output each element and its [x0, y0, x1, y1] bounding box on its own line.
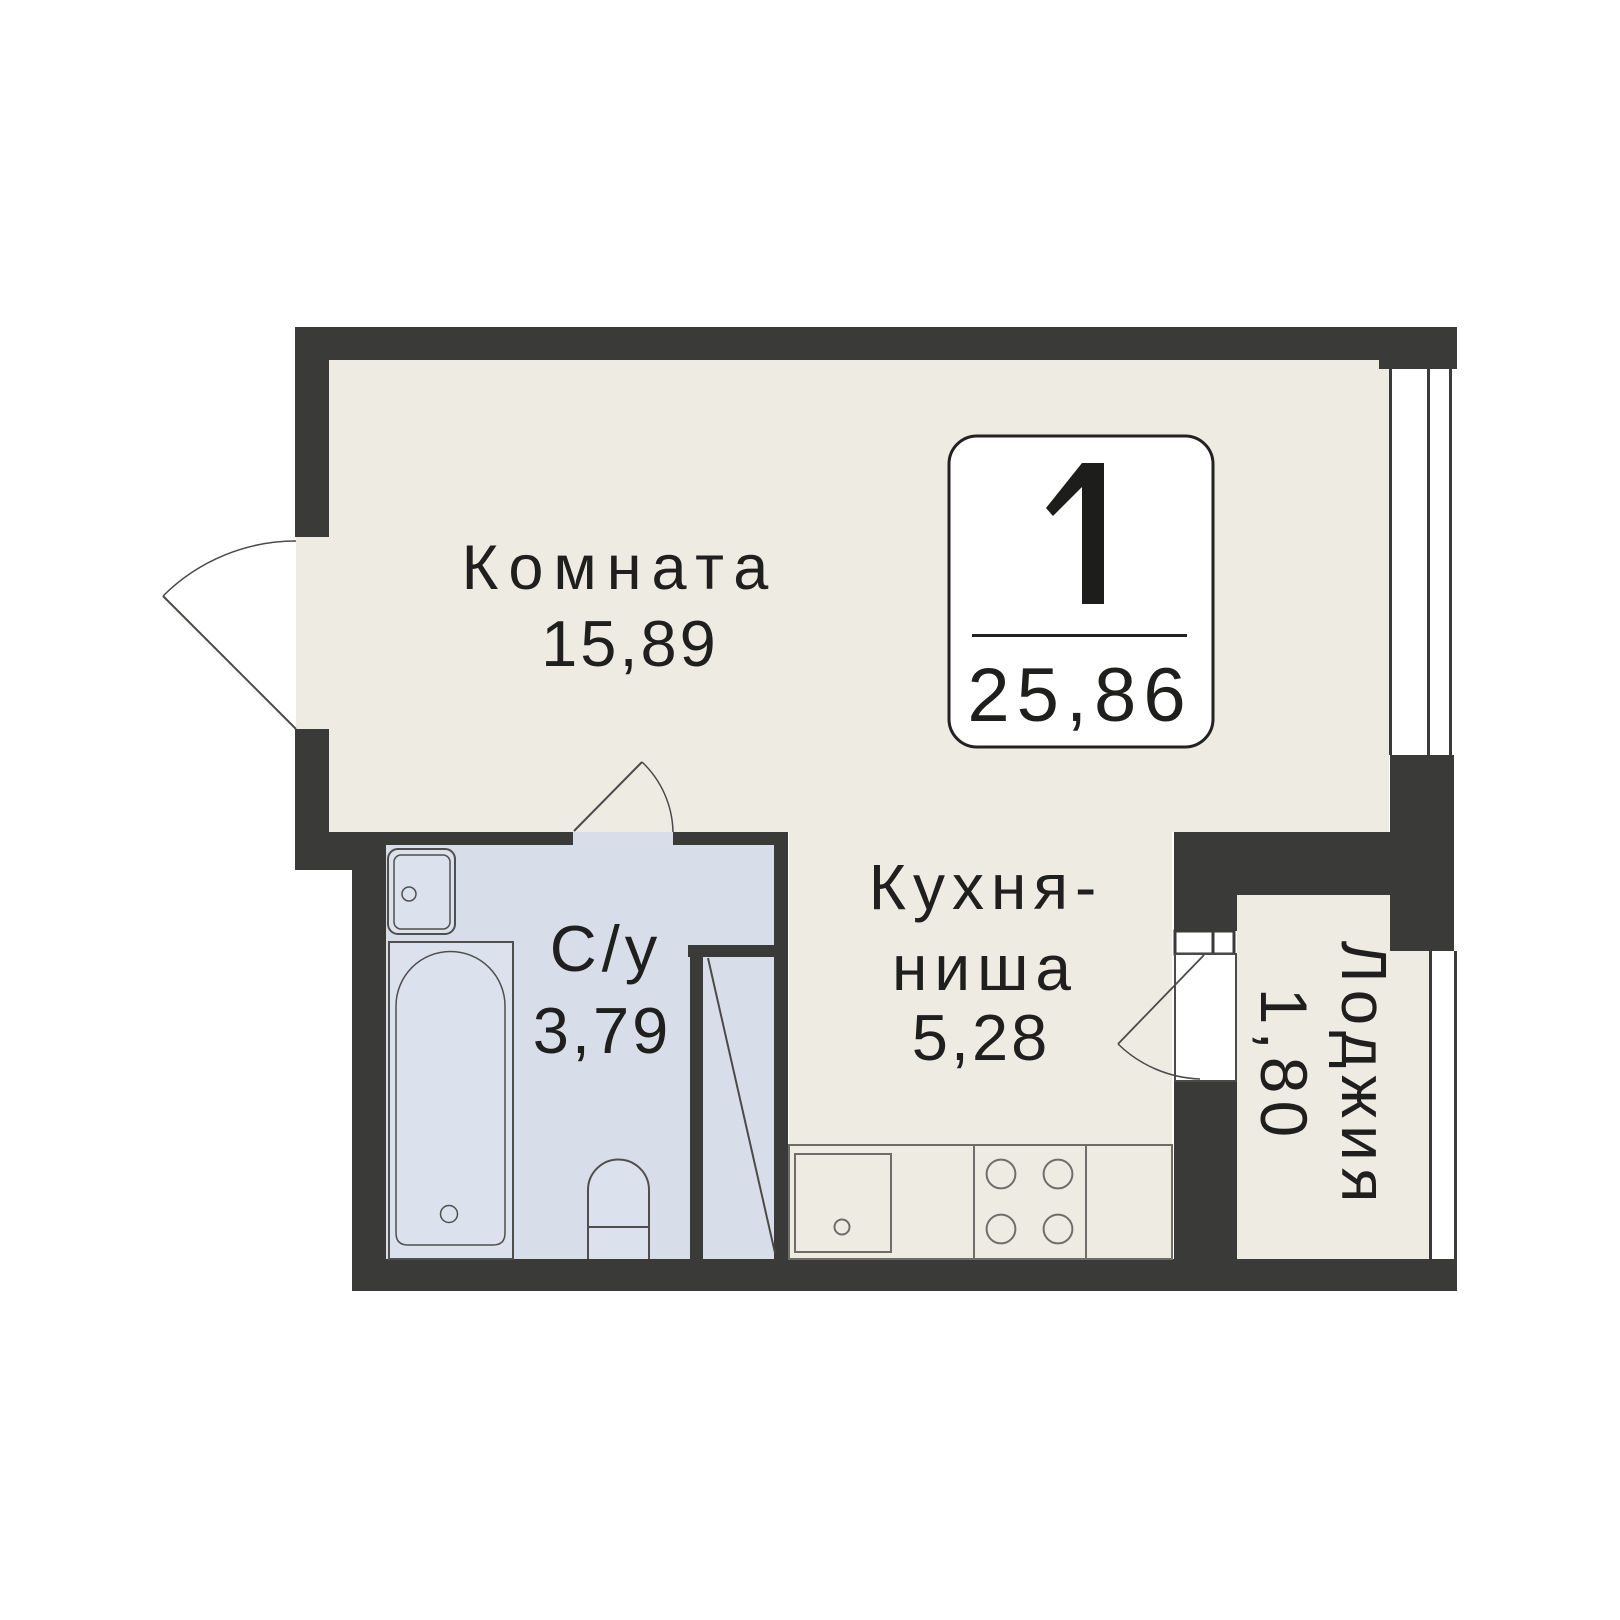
svg-text:15,89: 15,89 — [541, 607, 719, 680]
svg-text:25,86: 25,86 — [967, 653, 1192, 738]
svg-text:5,28: 5,28 — [912, 1001, 1051, 1074]
svg-text:1,80: 1,80 — [1247, 988, 1321, 1144]
svg-text:Лоджия: Лоджия — [1328, 941, 1400, 1210]
svg-text:Кухня-: Кухня- — [869, 851, 1104, 923]
svg-text:3,79: 3,79 — [533, 994, 672, 1067]
svg-text:ниша: ниша — [892, 932, 1078, 1004]
svg-text:С/у: С/у — [550, 912, 663, 985]
svg-text:Комната: Комната — [462, 533, 779, 603]
